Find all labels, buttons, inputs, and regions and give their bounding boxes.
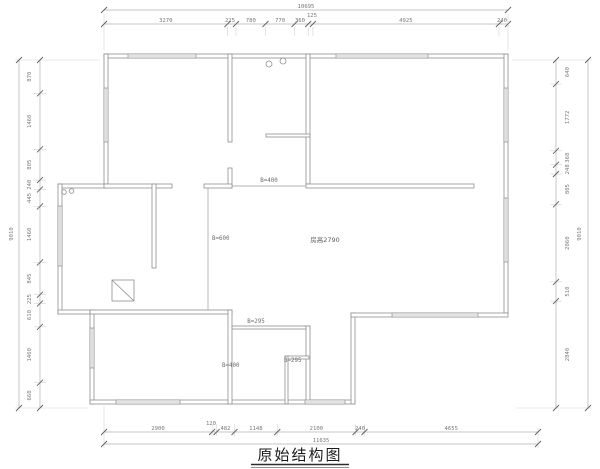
dim-label: 125	[307, 13, 317, 19]
dim-label: 225	[225, 18, 235, 24]
dim-label: 9010	[577, 227, 583, 240]
wall-segment-interior	[104, 184, 172, 188]
wall-segment-interior	[232, 326, 310, 329]
dim-label: 770	[275, 18, 285, 24]
wall-segment-interior	[204, 184, 232, 188]
dim-label: 2840	[565, 348, 571, 361]
dim-label: 10695	[298, 4, 315, 10]
shaft-diagonal	[112, 280, 134, 301]
dim-label: 9010	[9, 227, 15, 240]
dim-label: 2900	[151, 426, 164, 432]
wall-segment-interior	[90, 310, 232, 314]
dimension-right: 640 1772 368 248 805 2060 510 2840 9010	[553, 57, 591, 411]
wall-segment-interior	[228, 54, 232, 142]
title-block: 原始结构图	[251, 446, 349, 468]
dim-label: 360	[295, 18, 305, 24]
dimension-left: 9010 870 1460 805 240 445 1460 845 225 6…	[9, 57, 43, 411]
wall-segment	[58, 310, 94, 314]
wall-segment	[58, 184, 108, 188]
dim-label: 4925	[399, 18, 412, 24]
dim-label: 510	[565, 286, 571, 296]
windows	[58, 54, 508, 404]
dim-label: 248	[565, 164, 571, 175]
dim-label: 240	[497, 18, 507, 24]
dim-label: 1460	[27, 115, 33, 128]
dim-label: 2060	[565, 236, 571, 249]
dimension-top: 10695 3270 225 780 770 360 125 4925 240	[101, 4, 511, 27]
drawing-title: 原始结构图	[257, 446, 342, 464]
dimension-bottom: 2900 120 482 1148 2100 240 4655 11635	[101, 421, 541, 447]
plumbing-circle	[280, 58, 286, 64]
beam-label: B=295	[284, 358, 302, 364]
wall-segment-interior	[306, 326, 310, 404]
dim-label: 845	[27, 273, 33, 283]
dim-label: 240	[27, 180, 33, 190]
dim-label: 368	[565, 152, 571, 163]
walls	[58, 54, 508, 404]
dim-label: 870	[27, 72, 33, 82]
wall-segment-interior	[266, 134, 310, 137]
beam-label: B=600	[212, 236, 230, 242]
floor-plan-svg: 10695 3270 225 780 770 360 125 4925 240 …	[0, 0, 600, 469]
beam-label: B=400	[260, 178, 278, 184]
dim-label: 1460	[27, 228, 33, 241]
dim-label: 660	[27, 390, 33, 400]
wall-segment-interior	[306, 184, 474, 188]
dim-label: 1148	[249, 426, 263, 432]
room-height-label: 房高2790	[310, 235, 340, 244]
beam-label: B=400	[222, 363, 240, 369]
dim-label: 610	[27, 310, 33, 320]
dim-label: 640	[565, 67, 571, 77]
dim-label: 225	[27, 294, 33, 304]
dim-label: 1460	[27, 348, 33, 361]
dim-label: 805	[27, 160, 33, 170]
plumbing-circle	[266, 61, 272, 67]
plumbing-circle	[69, 189, 74, 194]
dim-label: 120	[206, 421, 216, 427]
plumbing-symbols	[62, 58, 286, 194]
beam-label: B=295	[247, 319, 265, 325]
dim-label: 482	[220, 426, 230, 432]
dim-label: 3270	[159, 18, 172, 24]
wall-segment-interior	[152, 184, 156, 268]
dim-label: 445	[27, 193, 33, 203]
wall-segment	[351, 313, 355, 404]
dim-label: 4655	[445, 426, 458, 432]
floor-plan-canvas: 10695 3270 225 780 770 360 125 4925 240 …	[0, 0, 600, 469]
dim-label: 2100	[310, 426, 323, 432]
dim-label: 240	[355, 426, 365, 432]
wall-segment-interior	[306, 54, 310, 184]
dim-label: 11635	[313, 438, 330, 444]
dim-label: 780	[246, 18, 256, 24]
dim-label: 1772	[565, 111, 571, 124]
dim-label: 805	[565, 184, 571, 194]
wall-segment-interior	[228, 310, 232, 404]
